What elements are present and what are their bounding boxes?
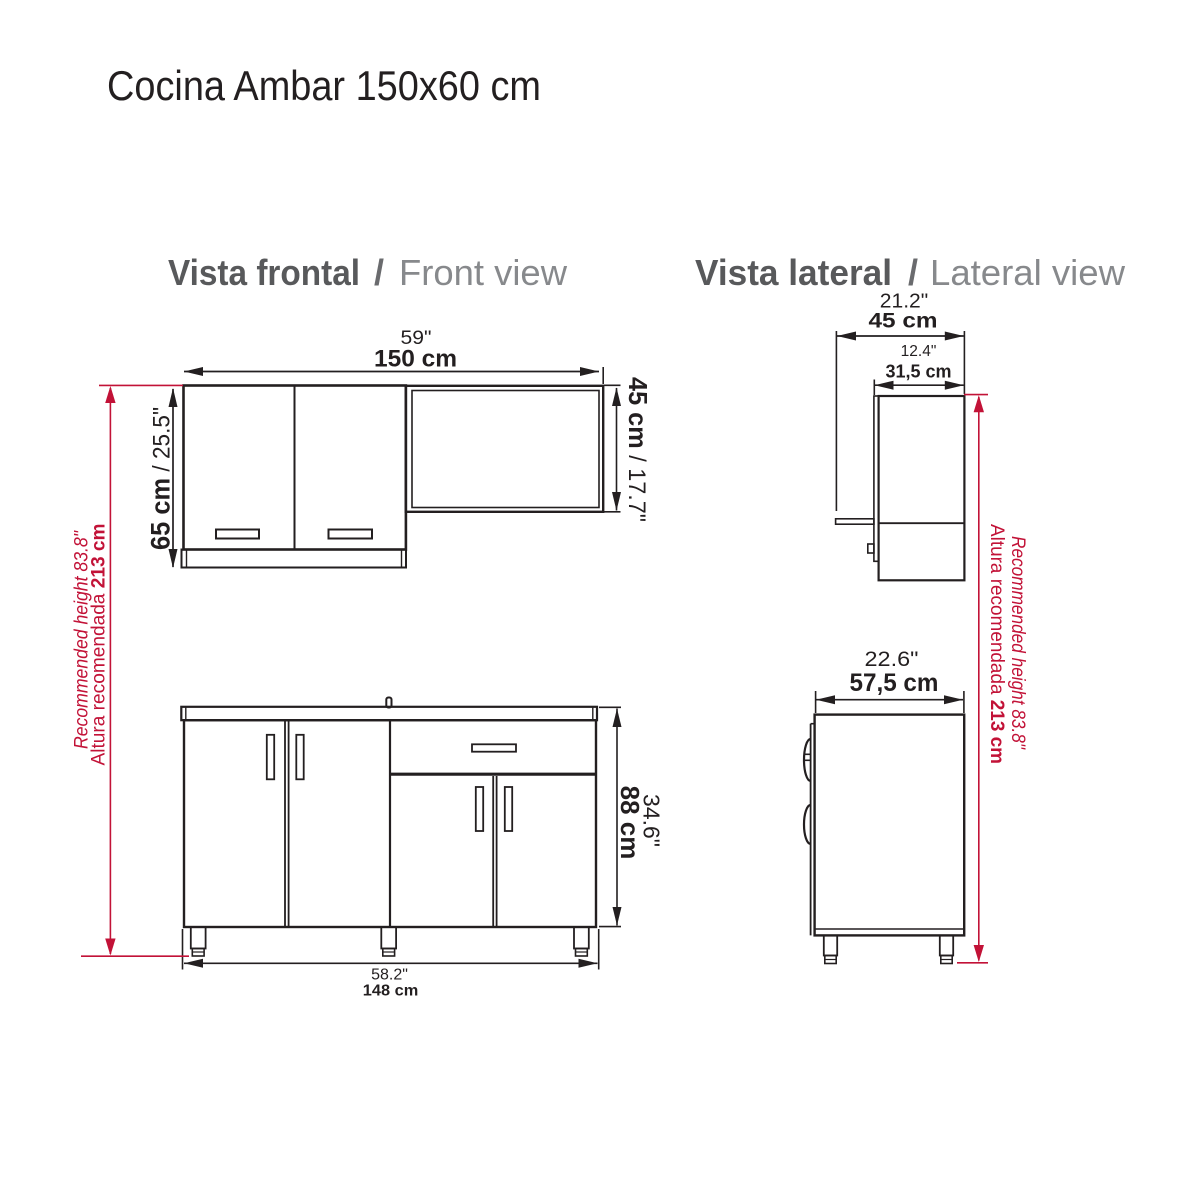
svg-text:/: /	[374, 252, 384, 293]
svg-text:Cocina Ambar 150x60 cm: Cocina Ambar 150x60 cm	[107, 62, 541, 109]
svg-text:Recommended height 83.8": Recommended height 83.8"	[1007, 536, 1028, 750]
svg-text:22.6": 22.6"	[865, 648, 919, 671]
svg-text:Altura recomendada 213 cm: Altura recomendada 213 cm	[89, 524, 110, 766]
svg-text:12.4": 12.4"	[901, 343, 937, 360]
svg-text:150 cm: 150 cm	[374, 346, 457, 373]
svg-text:45 cm / 17.7": 45 cm / 17.7"	[623, 377, 653, 522]
svg-text:34.6": 34.6"	[639, 794, 665, 847]
svg-text:Altura recomendada 213 cm: Altura recomendada 213 cm	[986, 524, 1007, 764]
svg-text:148 cm: 148 cm	[363, 983, 419, 1000]
svg-text:65 cm / 25.5": 65 cm / 25.5"	[146, 407, 176, 550]
svg-text:31,5 cm: 31,5 cm	[885, 362, 951, 382]
svg-text:58.2": 58.2"	[371, 967, 408, 984]
svg-text:/: /	[908, 252, 918, 293]
svg-text:57,5 cm: 57,5 cm	[850, 669, 939, 697]
svg-text:Lateral view: Lateral view	[930, 252, 1126, 293]
svg-text:45 cm: 45 cm	[869, 309, 938, 333]
svg-text:Vista lateral: Vista lateral	[695, 252, 892, 293]
svg-text:Front view: Front view	[399, 252, 568, 293]
svg-text:Vista frontal: Vista frontal	[168, 252, 360, 293]
